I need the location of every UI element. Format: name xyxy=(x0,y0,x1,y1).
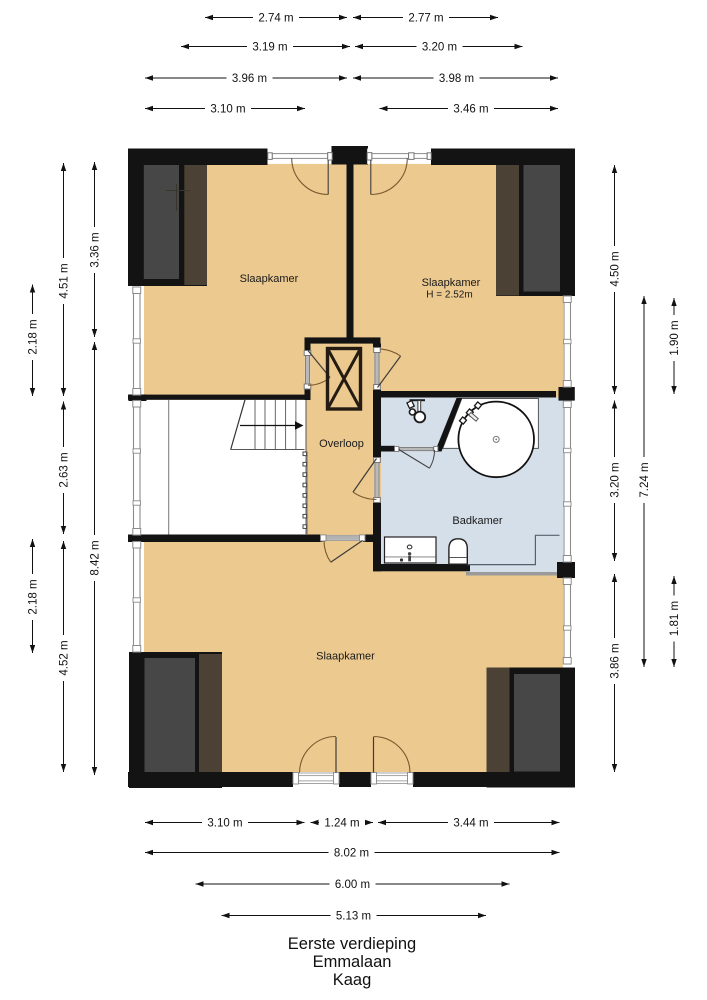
svg-text:3.44 m: 3.44 m xyxy=(453,817,488,829)
svg-text:2.18 m: 2.18 m xyxy=(27,579,39,614)
svg-text:3.36 m: 3.36 m xyxy=(89,232,101,267)
svg-text:2.77 m: 2.77 m xyxy=(408,12,443,24)
svg-text:1.90 m: 1.90 m xyxy=(669,320,681,355)
svg-text:1.81 m: 1.81 m xyxy=(669,601,681,636)
svg-text:3.19 m: 3.19 m xyxy=(252,41,287,53)
svg-text:3.10 m: 3.10 m xyxy=(207,817,242,829)
svg-text:3.46 m: 3.46 m xyxy=(453,103,488,115)
svg-text:Slaapkamer: Slaapkamer xyxy=(422,277,481,289)
svg-text:Kaag: Kaag xyxy=(333,971,372,989)
svg-text:Eerste verdieping: Eerste verdieping xyxy=(288,935,416,953)
svg-text:6.00 m: 6.00 m xyxy=(335,879,370,891)
svg-text:2.74 m: 2.74 m xyxy=(258,12,293,24)
svg-text:Overloop: Overloop xyxy=(319,438,364,450)
svg-text:Emmalaan: Emmalaan xyxy=(313,953,392,971)
svg-text:3.20 m: 3.20 m xyxy=(422,41,457,53)
svg-text:5.13 m: 5.13 m xyxy=(336,910,371,922)
svg-text:3.10 m: 3.10 m xyxy=(210,103,245,115)
svg-text:2.18 m: 2.18 m xyxy=(27,319,39,354)
svg-text:Slaapkamer: Slaapkamer xyxy=(240,273,299,285)
svg-text:4.51 m: 4.51 m xyxy=(58,263,70,298)
svg-text:4.50 m: 4.50 m xyxy=(609,251,621,286)
svg-text:2.63 m: 2.63 m xyxy=(58,452,70,487)
svg-text:4.52 m: 4.52 m xyxy=(58,640,70,675)
svg-text:Slaapkamer: Slaapkamer xyxy=(316,651,375,663)
svg-text:3.20 m: 3.20 m xyxy=(609,462,621,497)
svg-text:3.98 m: 3.98 m xyxy=(439,73,474,85)
svg-text:1.24 m: 1.24 m xyxy=(324,817,359,829)
svg-text:3.96 m: 3.96 m xyxy=(232,73,267,85)
svg-text:3.86 m: 3.86 m xyxy=(609,643,621,678)
svg-text:8.42 m: 8.42 m xyxy=(89,540,101,575)
svg-text:7.24 m: 7.24 m xyxy=(639,462,651,497)
svg-text:H = 2.52m: H = 2.52m xyxy=(426,290,472,301)
svg-text:8.02 m: 8.02 m xyxy=(334,847,369,859)
svg-text:Badkamer: Badkamer xyxy=(452,515,502,527)
